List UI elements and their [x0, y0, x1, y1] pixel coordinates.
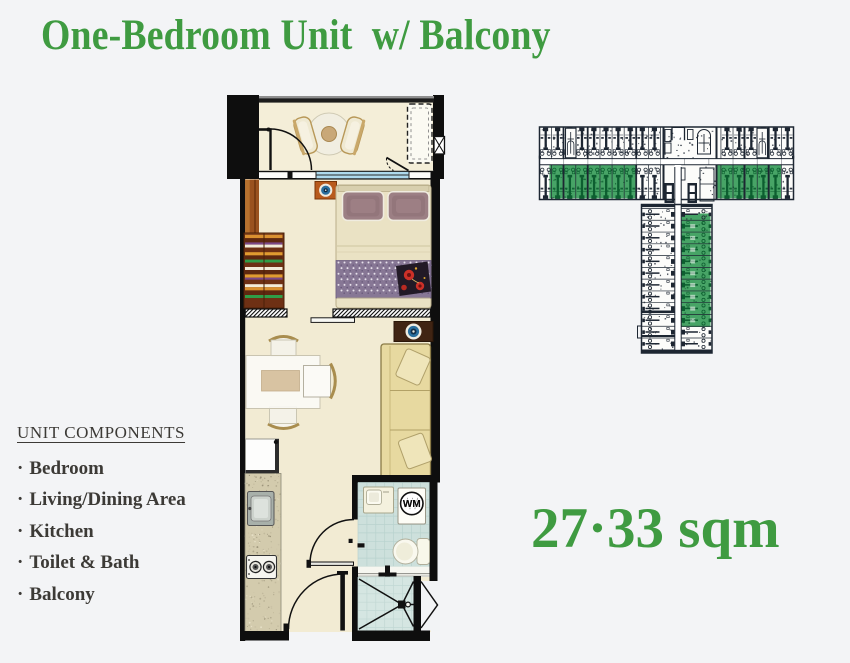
svg-text:WM: WM [403, 499, 421, 510]
